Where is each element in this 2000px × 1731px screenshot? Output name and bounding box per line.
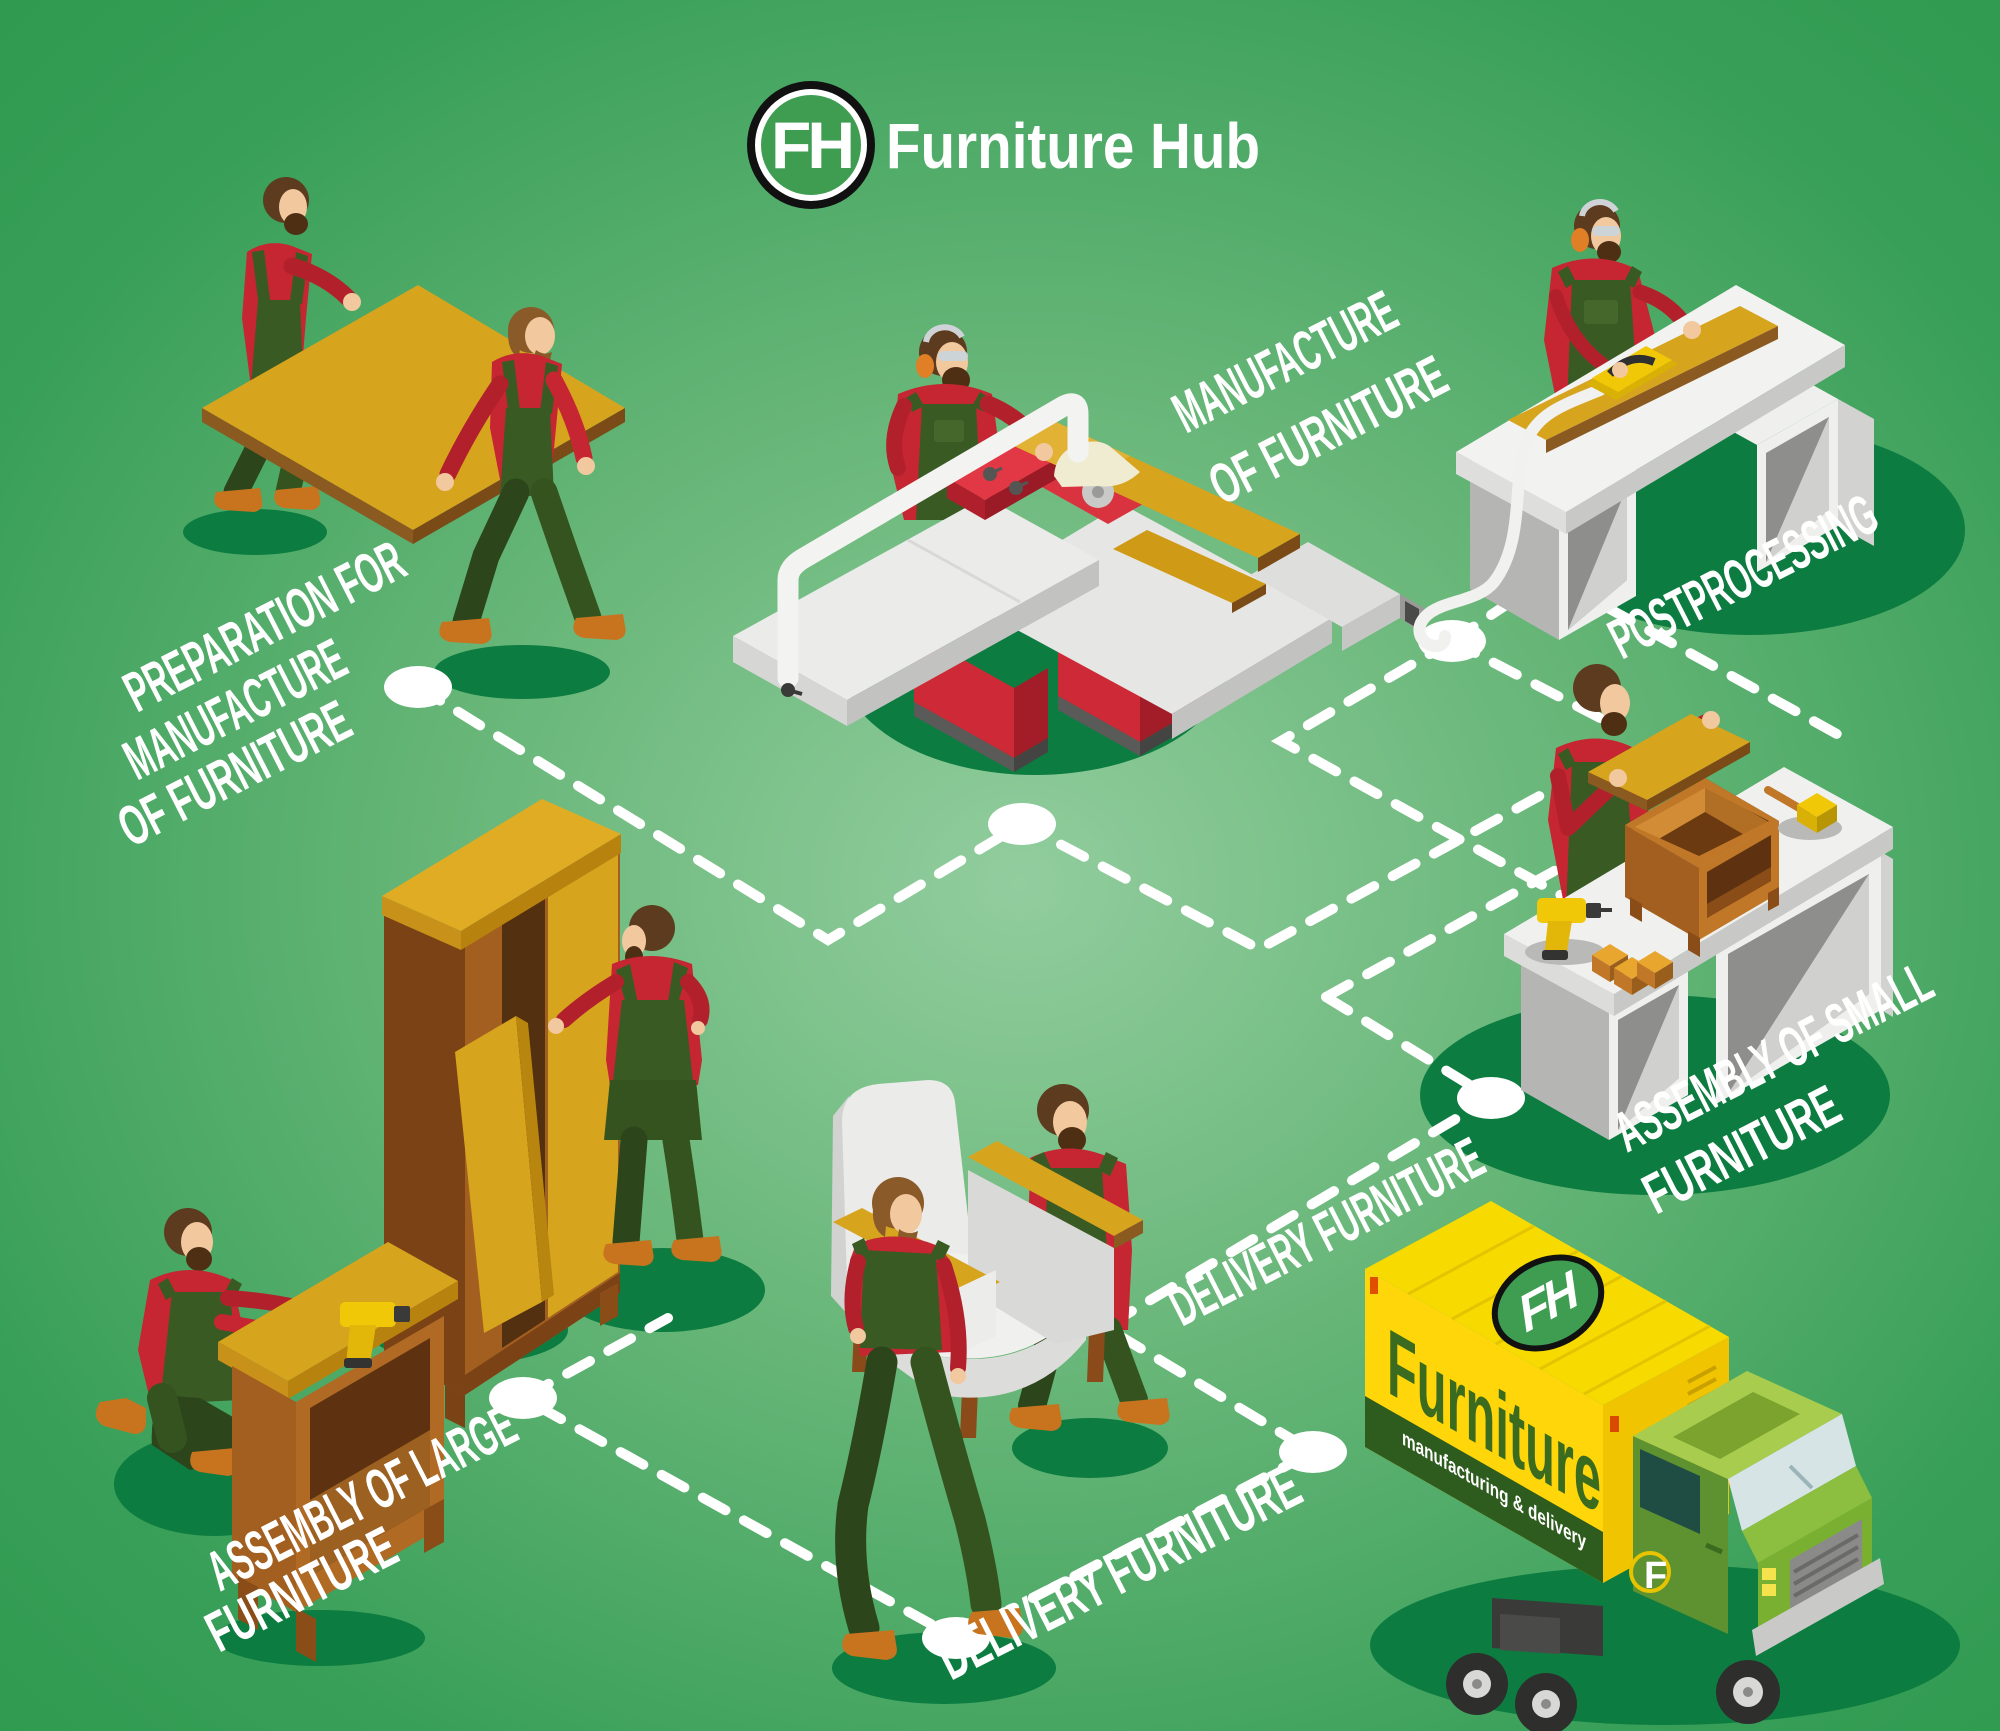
svg-text:Furniture Hub: Furniture Hub <box>886 110 1260 182</box>
svg-text:F: F <box>1644 1555 1667 1597</box>
svg-text:FH: FH <box>771 108 851 182</box>
